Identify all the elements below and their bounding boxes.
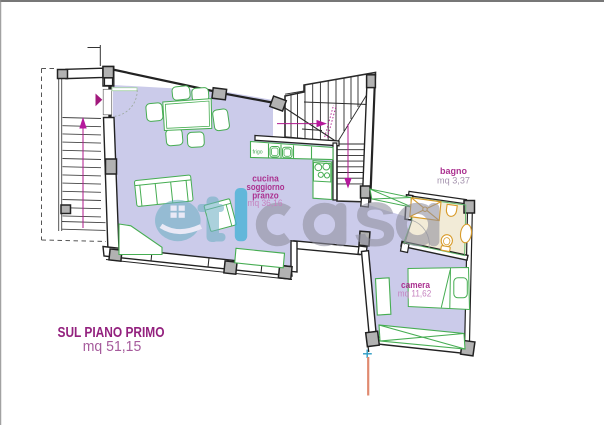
svg-text:mq 11,62: mq 11,62 xyxy=(398,288,432,298)
svg-text:mq 51,15: mq 51,15 xyxy=(83,338,142,355)
svg-text:frigo: frigo xyxy=(253,150,263,156)
svg-text:mq 3,37: mq 3,37 xyxy=(437,176,470,186)
svg-text:bagno: bagno xyxy=(440,166,468,176)
svg-text:s: s xyxy=(353,174,398,264)
svg-text:mq 36,16: mq 36,16 xyxy=(248,198,283,208)
